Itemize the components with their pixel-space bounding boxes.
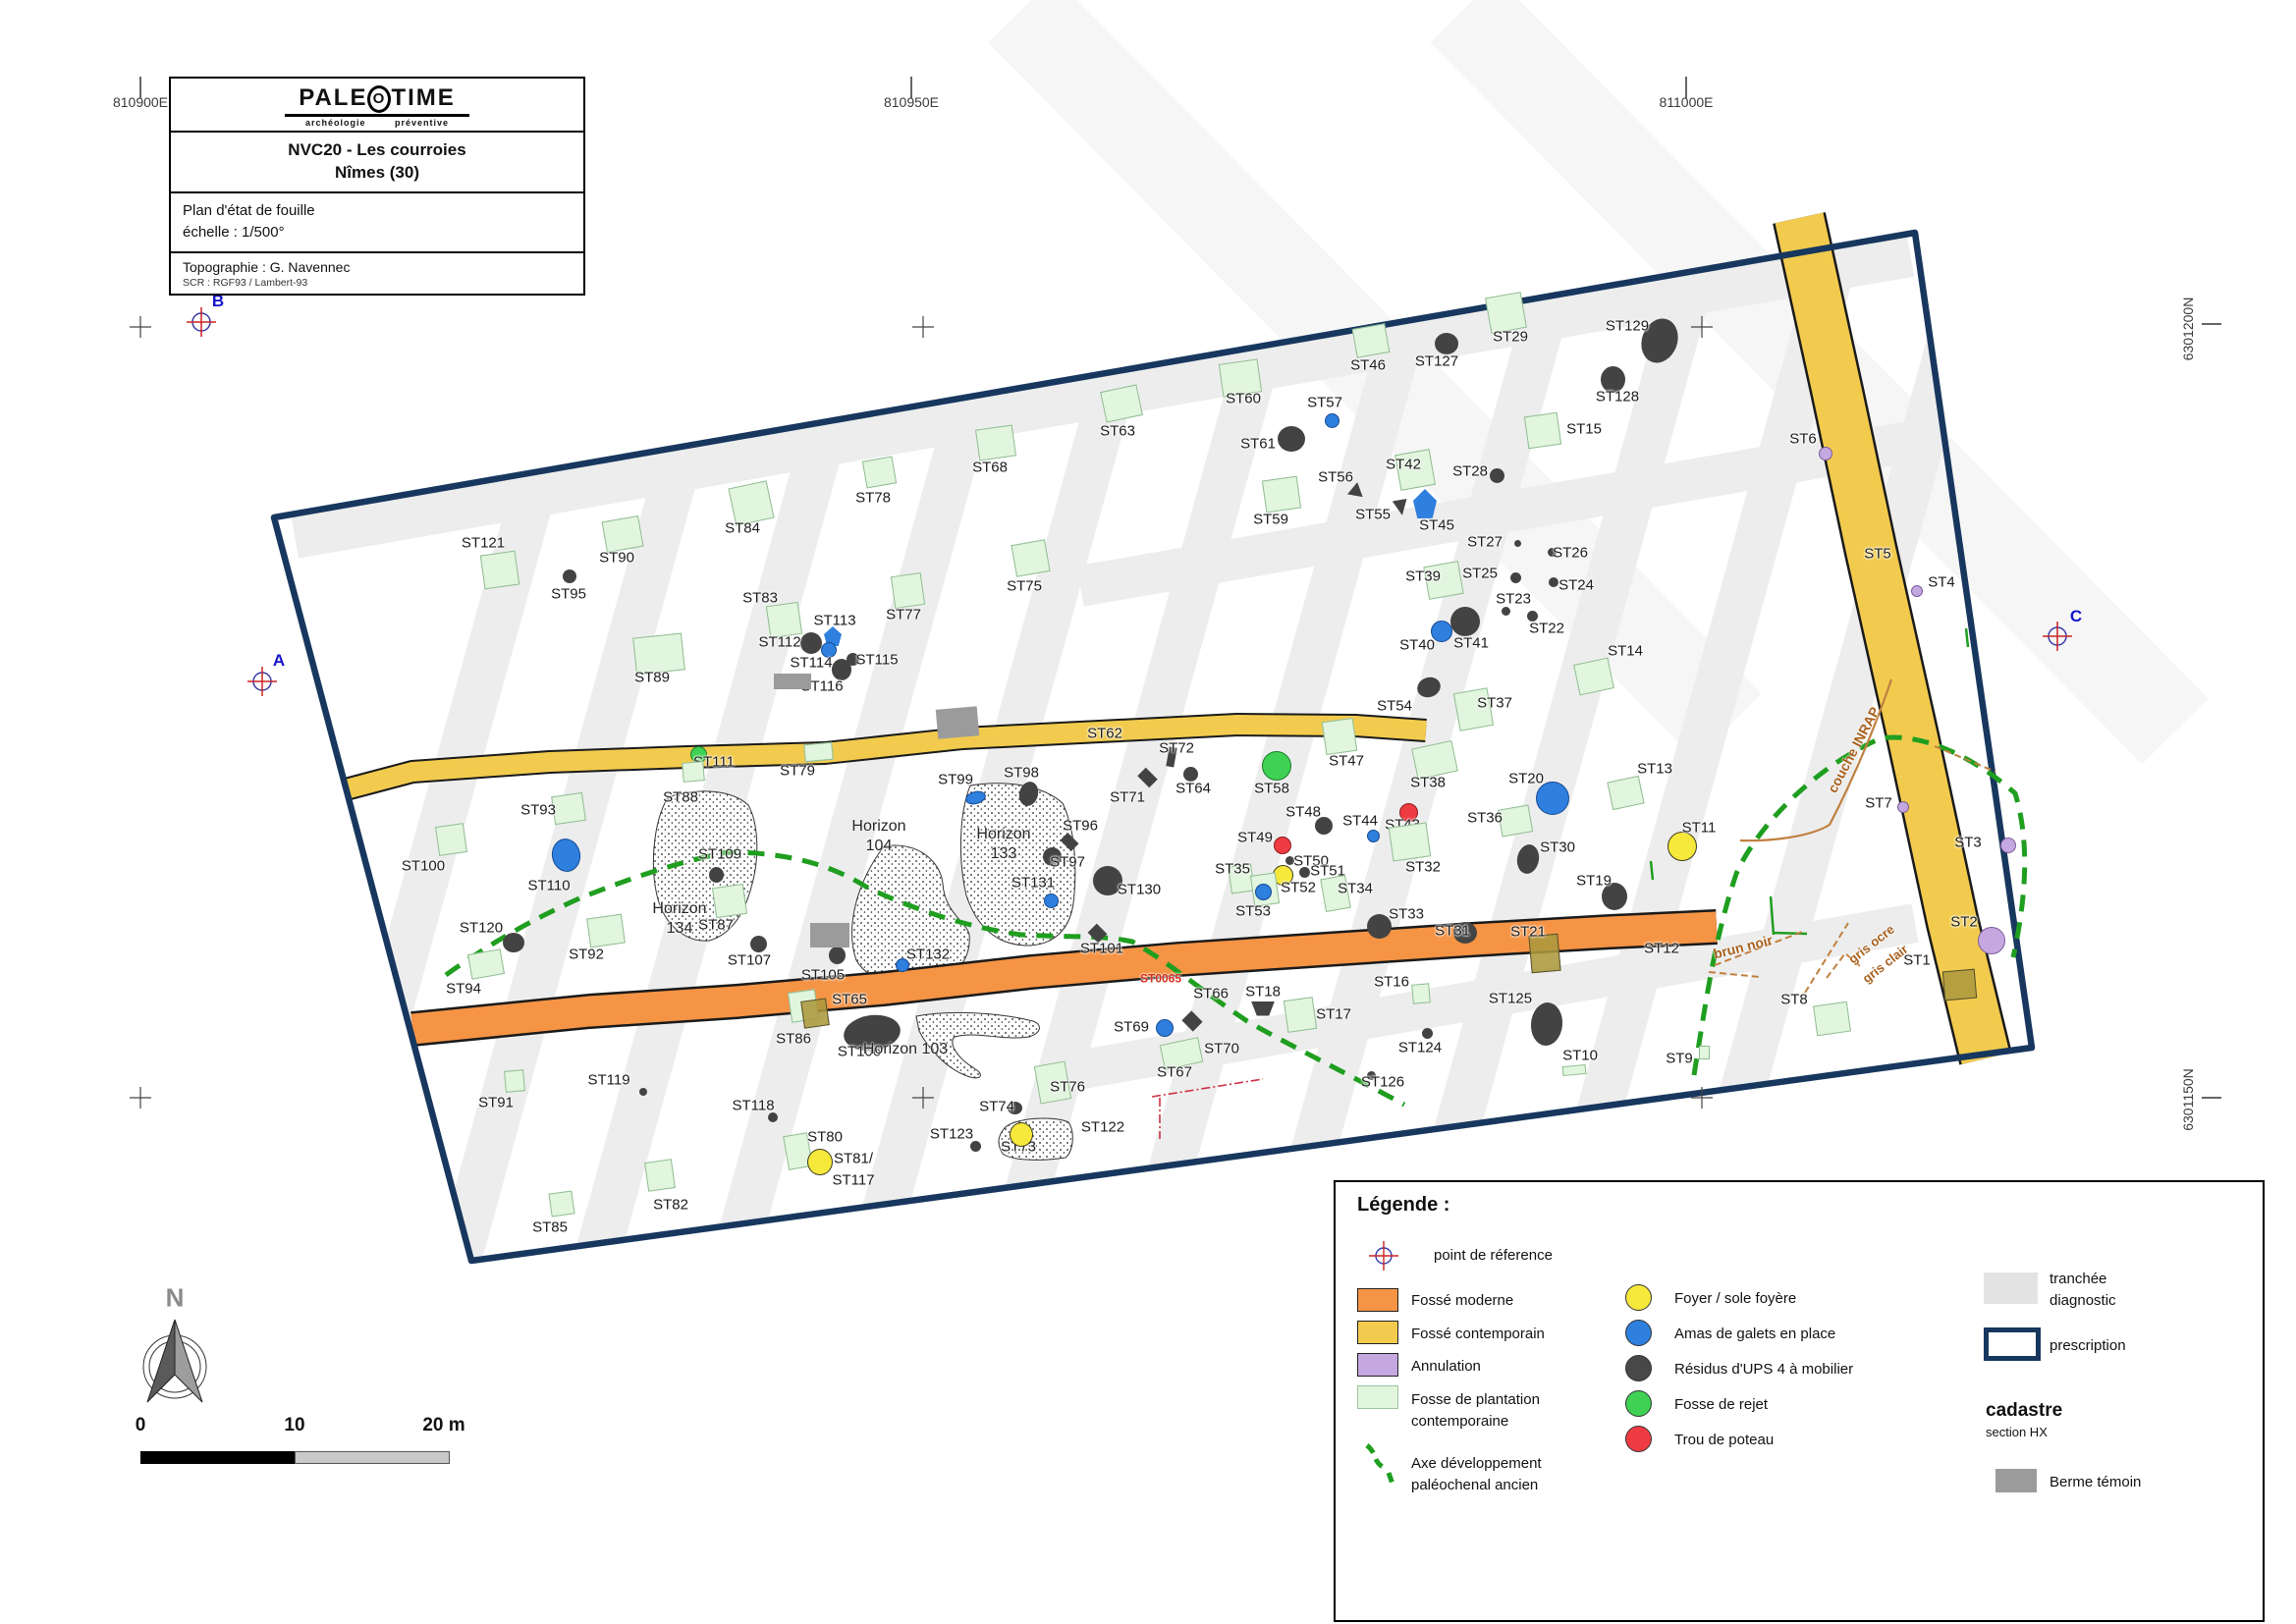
- feature-marker: [800, 998, 830, 1028]
- scalebar-gray-half: [295, 1451, 450, 1464]
- fosse-contemporain-swatch: [1357, 1321, 1398, 1344]
- st-label-st55: ST55: [1355, 508, 1391, 522]
- legend-cadastre-label: cadastre: [1986, 1400, 2062, 1422]
- st-label-st42: ST42: [1386, 458, 1421, 472]
- st-label-st23: ST23: [1496, 592, 1531, 607]
- feature-st6: [1819, 447, 1832, 460]
- st-label-st18: ST18: [1245, 985, 1281, 1000]
- legend-plantation-label: Fosse de plantation contemporaine: [1411, 1389, 1540, 1433]
- st-label-st2: ST2: [1950, 915, 1978, 930]
- grid-cross: [130, 1087, 151, 1109]
- st-label-st27: ST27: [1467, 535, 1503, 550]
- st-label-st62: ST62: [1087, 727, 1122, 741]
- scr-info: SCR : RGF93 / Lambert-93: [171, 277, 583, 294]
- legend-ref-point-label: point de réference: [1434, 1247, 1553, 1264]
- st-label-st94: ST94: [446, 982, 481, 997]
- st-label-st35: ST35: [1215, 862, 1250, 877]
- feature-st107: [750, 936, 767, 952]
- st-label-st28: ST28: [1452, 464, 1488, 479]
- st-label-st3: ST3: [1954, 836, 1982, 850]
- st-label-st79: ST79: [780, 764, 815, 779]
- prescription-swatch: [1984, 1327, 2041, 1361]
- feature-st53: [1255, 884, 1272, 900]
- st-label-st26: ST26: [1553, 546, 1588, 561]
- feature-st10: [1562, 1064, 1587, 1076]
- st-label-st81: ST81/: [834, 1152, 873, 1166]
- legend-amas-label: Amas de galets en place: [1674, 1326, 1835, 1342]
- st-label-st33: ST33: [1389, 907, 1424, 922]
- st-label-st64: ST64: [1175, 782, 1211, 796]
- feature-st88: [682, 761, 705, 783]
- feature-st13: [1607, 775, 1644, 809]
- st-label-st80: ST80: [807, 1130, 843, 1145]
- st-label-st24: ST24: [1558, 578, 1594, 593]
- feature-st3: [2000, 838, 2016, 853]
- feature-st131: [1044, 893, 1059, 908]
- feature-st64: [1183, 767, 1198, 782]
- berme-temoin-swatch: [1995, 1469, 2037, 1492]
- st-label-st99: ST99: [938, 773, 973, 787]
- horizon-104-polygon: [852, 845, 970, 984]
- feature-st91: [504, 1069, 525, 1093]
- scalebar-black-half: [140, 1451, 295, 1464]
- feature-st119: [639, 1088, 647, 1096]
- feature-st27: [1514, 540, 1521, 547]
- reference-point-icon: [1367, 1239, 1400, 1272]
- st-label-st7: ST7: [1865, 796, 1892, 811]
- feature-st29: [1485, 292, 1527, 334]
- feature-st109: [709, 867, 724, 883]
- st-label-st122: ST122: [1081, 1120, 1124, 1135]
- fosse-rejet-icon: [1625, 1390, 1652, 1417]
- st-label-st44: ST44: [1342, 814, 1378, 829]
- feature-st57: [1325, 413, 1339, 428]
- foyer-icon: [1625, 1284, 1652, 1311]
- site-code: NVC20 - Les courroies: [175, 139, 579, 162]
- st-label-st124: ST124: [1398, 1041, 1442, 1056]
- st-label-st13: ST13: [1637, 762, 1672, 777]
- st-label-st52: ST52: [1281, 881, 1316, 895]
- title-block: PALEOTIME archéologie préventive NVC20 -…: [169, 77, 585, 296]
- legend-fosse-moderne-label: Fossé moderne: [1411, 1292, 1513, 1309]
- st-label-st121: ST121: [462, 536, 505, 551]
- feature-st105: [829, 947, 846, 964]
- coordinate-label: 810900E: [113, 94, 168, 110]
- st-label-st69: ST69: [1114, 1020, 1149, 1035]
- st-label-st109: ST109: [698, 847, 741, 862]
- topographer: Topographie : G. Navennec: [171, 253, 583, 277]
- legend-annulation-label: Annulation: [1411, 1358, 1481, 1375]
- feature-st75: [1011, 539, 1050, 577]
- st-label-st21: ST21: [1510, 925, 1546, 940]
- st-label-st45: ST45: [1419, 518, 1454, 533]
- st-label-st16: ST16: [1374, 975, 1409, 990]
- st-label-st31: ST31: [1435, 924, 1470, 939]
- st-label-st25: ST25: [1462, 567, 1498, 581]
- reference-point-B: [187, 307, 216, 337]
- st-label-st5: ST5: [1864, 547, 1891, 562]
- st-label-st112: ST112: [758, 635, 800, 650]
- st-label-st66: ST66: [1193, 987, 1229, 1001]
- logo-o-icon: O: [367, 85, 391, 113]
- st-label-st48: ST48: [1285, 805, 1321, 820]
- feature-st1: [1941, 969, 1976, 1001]
- st-label-st85: ST85: [532, 1220, 568, 1235]
- north-label: N: [166, 1283, 185, 1314]
- scalebar-label: 10: [284, 1415, 304, 1436]
- plan-title: Plan d'état de fouille: [183, 200, 572, 223]
- feature-st112: [800, 632, 822, 654]
- st-label-st56: ST56: [1318, 470, 1353, 485]
- st-label-st97: ST97: [1050, 855, 1085, 870]
- st-label-st22: ST22: [1529, 622, 1564, 636]
- coordinate-label: 6301200N: [2180, 298, 2196, 361]
- st-label-st15: ST15: [1566, 422, 1602, 437]
- feature-st58: [1262, 751, 1291, 781]
- topo-info: Topographie : G. Navennec SCR : RGF93 / …: [171, 253, 583, 294]
- feature-st118: [768, 1112, 778, 1122]
- residus-icon: [1625, 1355, 1652, 1381]
- feature-st78: [861, 457, 896, 489]
- st-label-st115: ST115: [855, 653, 898, 668]
- feature-st120: [503, 933, 524, 952]
- st-label-st67: ST67: [1157, 1065, 1192, 1080]
- feature-st32: [1388, 822, 1430, 861]
- feature-marker: [936, 706, 979, 739]
- logo-subtitle: archéologie préventive: [171, 118, 583, 128]
- st-label-st105: ST105: [801, 968, 845, 983]
- st-label-st11: ST11: [1682, 821, 1717, 836]
- st-label-st59: ST59: [1253, 513, 1288, 527]
- st-label-st34: ST34: [1338, 882, 1373, 896]
- feature-st4: [1911, 585, 1923, 597]
- legend-poteau-label: Trou de poteau: [1674, 1432, 1774, 1448]
- feature-st121: [480, 550, 520, 589]
- st-label-st82: ST82: [653, 1198, 688, 1213]
- paleotime-logo: PALEOTIME archéologie préventive: [171, 79, 583, 133]
- legend: Légende : point de réference Fossé moder…: [1334, 1180, 2265, 1622]
- st-label-st129: ST129: [1606, 319, 1649, 334]
- legend-berme-label: Berme témoin: [2050, 1474, 2141, 1490]
- amas-galets-icon: [1625, 1320, 1652, 1346]
- feature-st95: [563, 569, 576, 583]
- feature-st90: [602, 515, 644, 553]
- legend-cadastre-section: section HX: [1986, 1425, 2048, 1439]
- st-label-st95: ST95: [551, 587, 586, 602]
- st-label-st37: ST37: [1477, 696, 1512, 711]
- feature-st61: [1278, 426, 1305, 452]
- st-label-st118: ST118: [732, 1099, 774, 1113]
- legend-fosse-contemporain-label: Fossé contemporain: [1411, 1326, 1545, 1342]
- st-label-st32: ST32: [1405, 860, 1441, 875]
- feature-st49: [1274, 837, 1291, 854]
- st-label-st30: ST30: [1540, 840, 1575, 855]
- feature-marker: [810, 923, 849, 947]
- grid-cross: [912, 316, 934, 338]
- st-label-st41: ST41: [1453, 636, 1489, 651]
- feature-st15: [1524, 411, 1561, 448]
- st-label-st20: ST20: [1508, 772, 1544, 786]
- st-label-st92: ST92: [569, 947, 604, 962]
- trou-poteau-icon: [1625, 1426, 1652, 1452]
- st-label-st57: ST57: [1307, 396, 1342, 410]
- st-label-st70: ST70: [1204, 1042, 1239, 1056]
- st-label-st68: ST68: [972, 460, 1008, 475]
- feature-st79: [803, 742, 833, 762]
- st-label-st58: ST58: [1254, 782, 1289, 796]
- st-label-st63: ST63: [1100, 424, 1135, 439]
- st-label-st10: ST10: [1562, 1049, 1598, 1063]
- feature-st24: [1549, 577, 1558, 587]
- feature-st28: [1490, 468, 1504, 483]
- plan-info: Plan d'état de fouille échelle : 1/500°: [171, 193, 583, 253]
- st-label-st72: ST72: [1159, 741, 1194, 756]
- feature-st23: [1502, 607, 1510, 616]
- feature-st11: [1667, 832, 1697, 861]
- st-label-st98: ST98: [1004, 766, 1039, 781]
- feature-st92: [586, 914, 626, 948]
- st-label-st4: ST4: [1928, 575, 1955, 590]
- st-label-st40: ST40: [1399, 638, 1435, 653]
- feature-st93: [551, 791, 586, 824]
- legend-rejet-label: Fosse de rejet: [1674, 1396, 1768, 1413]
- feature-st7: [1897, 801, 1909, 813]
- st-label-st75: ST75: [1007, 579, 1042, 594]
- st-label-st12: ST12: [1644, 942, 1679, 956]
- feature-st41: [1450, 607, 1480, 636]
- st-label-st89: ST89: [634, 671, 670, 685]
- st-label-st119: ST119: [587, 1073, 629, 1088]
- tranchee-diagnostic-swatch: [1984, 1272, 2038, 1304]
- feature-st51: [1299, 867, 1310, 878]
- annotation: Horizon 133: [976, 825, 1030, 864]
- st-label-st46: ST46: [1350, 358, 1386, 373]
- feature-st100: [435, 823, 467, 856]
- feature-marker: [774, 674, 811, 689]
- annotation: Horizon 104: [851, 817, 905, 856]
- st-label-st19: ST19: [1576, 874, 1612, 889]
- st-label-st93: ST93: [520, 803, 556, 818]
- st-label-st117: ST117: [832, 1173, 874, 1188]
- st-label-st17: ST17: [1316, 1007, 1351, 1022]
- st-label-st36: ST36: [1467, 811, 1503, 826]
- feature-st9: [1699, 1046, 1710, 1059]
- st-label-st96: ST96: [1063, 819, 1098, 834]
- feature-st83: [765, 601, 801, 637]
- annotation: Horizon 103: [863, 1040, 948, 1059]
- feature-st81: [807, 1149, 833, 1175]
- paleochenal-axis-icon: [1359, 1439, 1408, 1490]
- reference-letter-C: C: [2070, 607, 2082, 626]
- st-label-st88: ST88: [663, 790, 698, 805]
- feature-st2: [1978, 927, 2005, 954]
- feature-st69: [1156, 1019, 1174, 1037]
- st-label-st110: ST110: [527, 879, 570, 893]
- st-label-st120: ST120: [460, 921, 503, 936]
- st-label-st78: ST78: [855, 491, 891, 506]
- st-label-st77: ST77: [886, 608, 921, 623]
- st-label-st132: ST132: [906, 947, 950, 962]
- st-label-st125: ST125: [1489, 992, 1532, 1006]
- coordinate-label: 811000E: [1659, 94, 1713, 110]
- feature-st82: [644, 1159, 676, 1192]
- st-label-st127: ST127: [1415, 354, 1458, 369]
- legend-tranchee-label: tranchée diagnostic: [2050, 1269, 2116, 1312]
- st-label-st107: ST107: [728, 953, 771, 968]
- legend-axe-label: Axe développement paléochenal ancien: [1411, 1453, 1542, 1496]
- st-label-st76: ST76: [1050, 1080, 1085, 1095]
- legend-foyer-label: Foyer / sole foyère: [1674, 1290, 1796, 1307]
- st-label-st53: ST53: [1235, 904, 1271, 919]
- st-label-st49: ST49: [1237, 831, 1273, 845]
- st-label-st65: ST65: [832, 993, 867, 1007]
- st-label-st84: ST84: [725, 521, 760, 536]
- feature-st87: [712, 883, 747, 917]
- st-label-st123: ST123: [930, 1127, 973, 1142]
- feature-st84: [728, 480, 774, 525]
- st-label-st74: ST74: [979, 1100, 1014, 1114]
- feature-st44: [1367, 830, 1380, 842]
- site-city: Nîmes (30): [175, 162, 579, 185]
- feature-st47: [1322, 718, 1357, 755]
- plan-scale: échelle : 1/500°: [183, 222, 572, 244]
- st-label-st101: ST101: [1080, 942, 1123, 956]
- st-label-st6: ST6: [1789, 432, 1817, 447]
- st-label-st83: ST83: [742, 591, 778, 606]
- st-label-st100: ST100: [402, 859, 445, 874]
- feature-marker: [1010, 1122, 1033, 1147]
- feature-st46: [1352, 323, 1391, 357]
- st-label-st39: ST39: [1405, 569, 1441, 584]
- feature-st77: [890, 572, 924, 609]
- st-label-st71: ST71: [1110, 790, 1145, 805]
- feature-st59: [1262, 475, 1301, 513]
- st-label-st91: ST91: [478, 1096, 514, 1110]
- scalebar-label: 0: [136, 1415, 146, 1436]
- reference-point-A: [247, 667, 277, 696]
- feature-st68: [975, 425, 1016, 461]
- st-label-st9: ST9: [1666, 1052, 1693, 1066]
- feature-st36: [1498, 804, 1533, 837]
- coordinate-label: 810950E: [884, 94, 939, 110]
- grid-cross: [130, 316, 151, 338]
- st-label-st90: ST90: [599, 551, 634, 566]
- st-label-st8: ST8: [1780, 993, 1808, 1007]
- scalebar-label: 20 m: [422, 1415, 465, 1436]
- coordinate-label: 6301150N: [2180, 1068, 2196, 1131]
- site-title: NVC20 - Les courroies Nîmes (30): [171, 133, 583, 193]
- north-arrow: [143, 1320, 206, 1402]
- st-label-st61: ST61: [1240, 437, 1276, 452]
- page: { "title_block": { "logo_pale": "PALE", …: [0, 0, 2296, 1624]
- annotation: Horizon 134: [652, 899, 706, 939]
- st-label-st47: ST47: [1329, 754, 1364, 769]
- annotation: ST0065: [1140, 972, 1181, 987]
- st-label-st126: ST126: [1361, 1075, 1404, 1090]
- st-label-st131: ST131: [1011, 876, 1055, 891]
- fosse-plantation-swatch: [1357, 1385, 1398, 1409]
- legend-residus-label: Résidus d'UPS 4 à mobilier: [1674, 1361, 1853, 1378]
- feature-st33: [1367, 914, 1392, 939]
- st-label-st14: ST14: [1608, 644, 1643, 659]
- st-label-st38: ST38: [1410, 776, 1446, 790]
- reference-letter-A: A: [273, 651, 285, 671]
- st-label-st29: ST29: [1493, 330, 1528, 345]
- st-label-st113: ST113: [813, 614, 855, 628]
- feature-st127: [1435, 333, 1458, 354]
- st-label-st86: ST86: [776, 1032, 811, 1047]
- annulation-swatch: [1357, 1353, 1398, 1377]
- feature-st85: [548, 1190, 574, 1217]
- legend-title: Légende :: [1357, 1194, 1449, 1217]
- st-label-st114: ST114: [790, 656, 832, 671]
- fosse-moderne-swatch: [1357, 1288, 1398, 1312]
- feature-st25: [1510, 572, 1521, 583]
- feature-st124: [1422, 1028, 1433, 1039]
- feature-st17: [1284, 997, 1317, 1033]
- legend-prescription-label: prescription: [2050, 1337, 2126, 1354]
- st-label-st54: ST54: [1377, 699, 1412, 714]
- feature-st8: [1813, 1001, 1851, 1036]
- feature-st16: [1411, 983, 1431, 1003]
- st-label-st130: ST130: [1118, 883, 1161, 897]
- st-label-st128: ST128: [1596, 390, 1639, 405]
- st-label-st60: ST60: [1226, 392, 1261, 406]
